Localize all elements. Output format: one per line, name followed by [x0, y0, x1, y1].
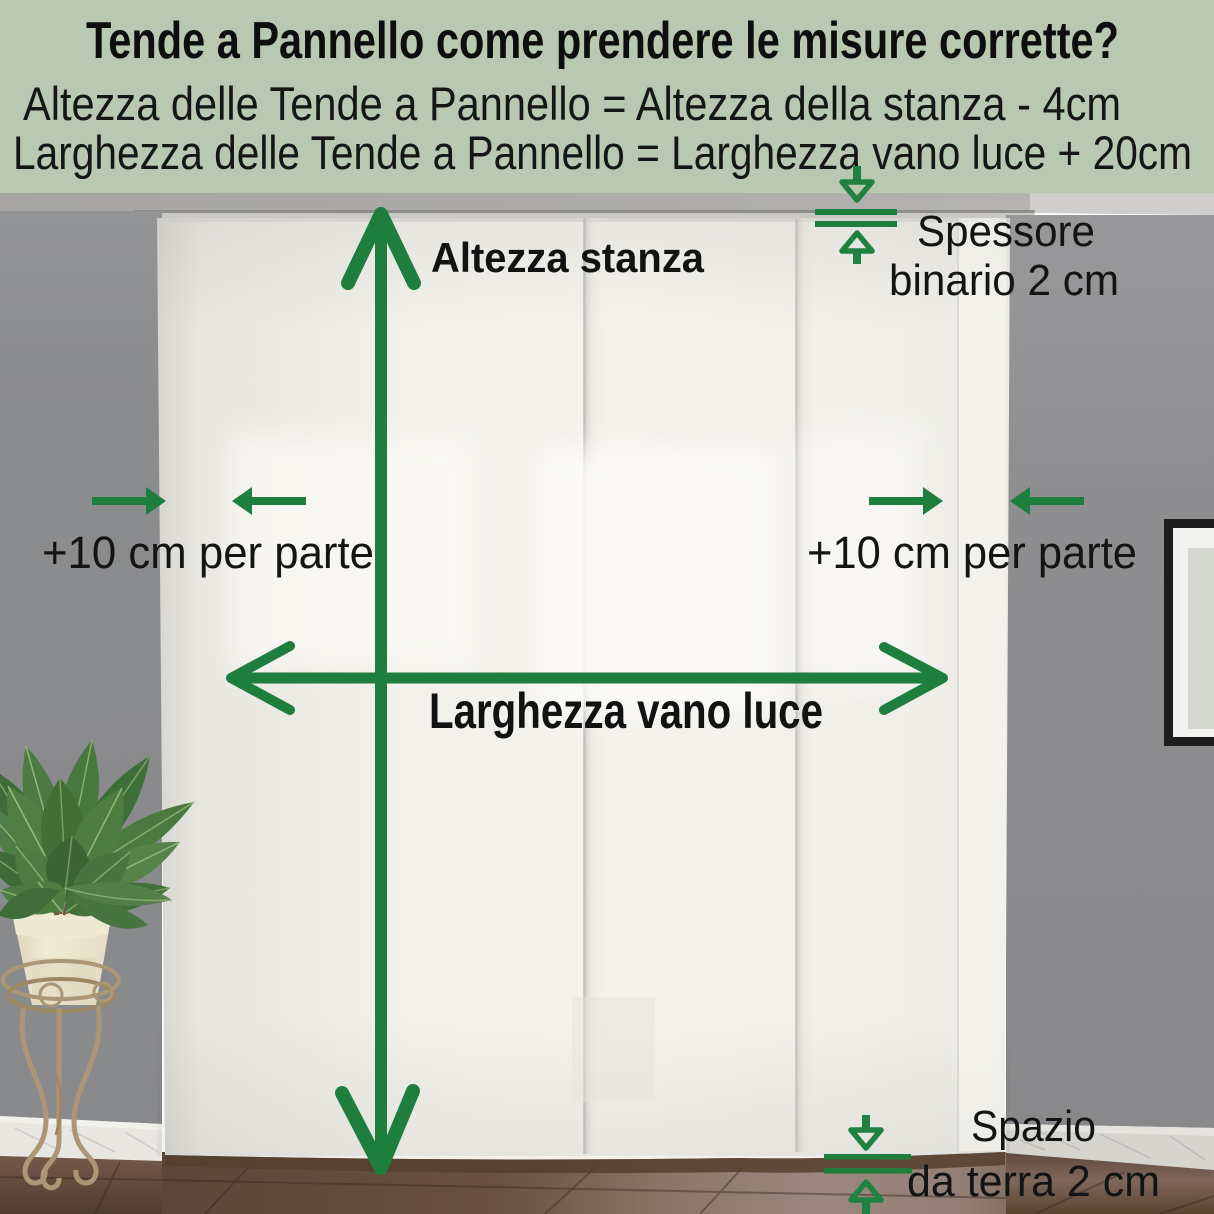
svg-text:Spazio: Spazio: [971, 1102, 1096, 1151]
svg-text:Altezza delle Tende a Pannello: Altezza delle Tende a Pannello = Altezza…: [23, 77, 1121, 130]
svg-text:Tende a Pannello come prendere: Tende a Pannello come prendere le misure…: [86, 12, 1119, 70]
svg-text:Larghezza delle Tende a Pannel: Larghezza delle Tende a Pannello = Largh…: [13, 126, 1192, 179]
svg-text:da terra 2 cm: da terra 2 cm: [907, 1157, 1160, 1206]
svg-text:Spessore: Spessore: [917, 207, 1095, 256]
svg-text:Altezza stanza: Altezza stanza: [431, 234, 705, 281]
svg-text:Larghezza vano luce: Larghezza vano luce: [429, 683, 823, 739]
svg-text:binario 2 cm: binario 2 cm: [889, 256, 1119, 305]
svg-text:+10 cm per parte: +10 cm per parte: [42, 527, 374, 578]
svg-text:+10 cm per parte: +10 cm per parte: [807, 527, 1137, 578]
